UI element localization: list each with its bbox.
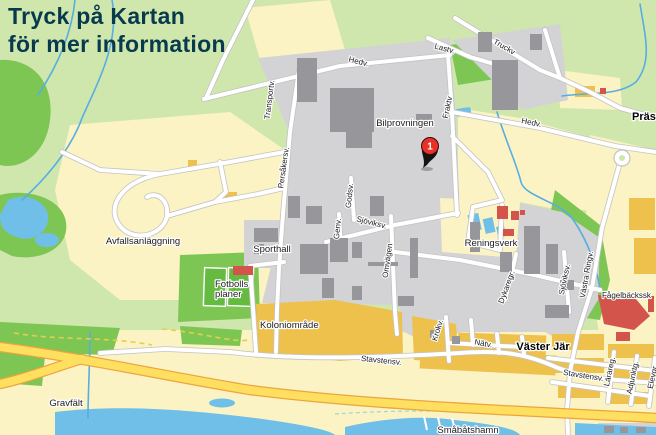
marker-number: 1: [427, 142, 433, 153]
area-label-gravfalt: Gravfält: [49, 398, 83, 409]
map-container[interactable]: Hedv. Lastv. Truckv Transportv. Bilprovn…: [0, 0, 656, 435]
area-label-fagelbacksskolan: Fågelbäckssk: [602, 291, 652, 300]
pond-shore: [209, 399, 235, 408]
area-label-smabatshamn: Småbåtshamn: [437, 425, 498, 435]
map-instruction-line2: för mer information: [8, 30, 226, 58]
pond-west: [35, 233, 59, 247]
area-label-reningsverk: Reningsverk: [465, 238, 518, 249]
place-label-vaster-jar: Väster Jär: [516, 341, 570, 353]
map-instruction-title: Tryck på Kartan för mer information: [8, 2, 226, 58]
area-label-bilprovningen: Bilprovningen: [376, 118, 434, 129]
area-label-sporthall: Sporthall: [253, 244, 291, 255]
area-label-avfallsanlaggning: Avfallsanläggning: [106, 236, 180, 247]
map[interactable]: Hedv. Lastv. Truckv Transportv. Bilprovn…: [0, 0, 656, 435]
place-label-prast: Präst: [632, 111, 656, 123]
area-label-koloniomrade: Koloniområde: [260, 320, 319, 331]
map-instruction-line1: Tryck på Kartan: [8, 2, 226, 30]
roundabout-island: [619, 155, 625, 161]
marker-shadow: [421, 167, 433, 171]
area-label-planer: planer: [215, 289, 241, 300]
